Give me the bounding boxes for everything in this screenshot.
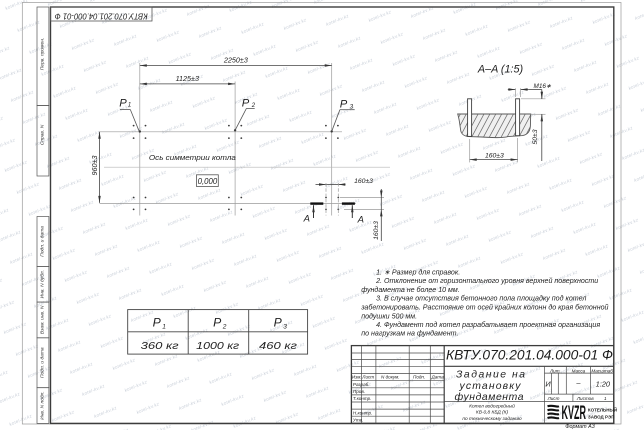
svg-text:Разраб.: Разраб. [353, 382, 370, 387]
svg-text:P: P [340, 99, 348, 111]
svg-text:Подп. и дата: Подп. и дата [40, 226, 46, 257]
svg-text:Подп. и дата: Подп. и дата [40, 347, 46, 378]
svg-text:Утв.: Утв. [353, 418, 363, 423]
svg-text:Лит.: Лит. [549, 368, 561, 373]
svg-text:A: A [303, 214, 310, 225]
svg-text:160±3: 160±3 [354, 178, 373, 185]
svg-text:Изм.: Изм. [352, 375, 362, 380]
svg-text:N докум.: N докум. [381, 375, 400, 380]
svg-text:960±3: 960±3 [90, 156, 99, 176]
svg-text:1125±3: 1125±3 [176, 74, 199, 83]
svg-text:–: – [575, 379, 581, 388]
svg-text:P: P [213, 316, 222, 330]
svg-text:по техническому заданию: по техническому заданию [462, 416, 522, 422]
svg-text:Инв. N подл.: Инв. N подл. [40, 391, 46, 420]
svg-text:360 кг: 360 кг [141, 341, 179, 352]
svg-text:Т.контр.: Т.контр. [353, 396, 372, 401]
svg-text:1: 1 [128, 103, 131, 109]
svg-text:Подп.: Подп. [413, 375, 425, 380]
svg-text:КВТУ.070.201.04.000-01 Ф: КВТУ.070.201.04.000-01 Ф [54, 12, 147, 21]
svg-text:Лист: Лист [547, 396, 560, 401]
svg-text:установку: установку [459, 381, 522, 392]
svg-text:Пров.: Пров. [353, 389, 365, 394]
svg-text:1: 1 [604, 396, 607, 401]
svg-text:Формат А3: Формат А3 [565, 424, 595, 430]
svg-text:3: 3 [283, 323, 287, 330]
svg-text:1:20: 1:20 [596, 380, 611, 389]
svg-text:Перв. примен.: Перв. примен. [40, 38, 46, 71]
svg-text:P: P [153, 316, 162, 330]
svg-text:A: A [357, 215, 364, 226]
svg-text:Справ. N: Справ. N [40, 124, 46, 145]
svg-text:Лист: Лист [361, 375, 374, 380]
svg-text:подушки 500 мм.: подушки 500 мм. [361, 312, 417, 320]
svg-text:460 кг: 460 кг [259, 341, 297, 352]
svg-text:1000 кг: 1000 кг [196, 341, 239, 352]
svg-text:М16∗: М16∗ [534, 83, 552, 90]
svg-text:1. ∗ Размер для справок.: 1. ∗ Размер для справок. [376, 268, 460, 276]
svg-text:Ось симметрии котла: Ось симметрии котла [149, 153, 236, 162]
svg-text:Масштаб: Масштаб [591, 368, 613, 373]
svg-text:КВ-0,8 КБД (К): КВ-0,8 КБД (К) [476, 409, 509, 415]
svg-text:Инв. N дубл.: Инв. N дубл. [40, 270, 46, 298]
svg-text:50±3: 50±3 [532, 129, 539, 144]
svg-text:1: 1 [162, 323, 166, 330]
svg-text:забетонировать. Расстояние от: забетонировать. Расстояние от осей крайн… [360, 303, 608, 311]
svg-text:фундамента не более 10 мм.: фундамента не более 10 мм. [361, 286, 460, 294]
svg-text:по нагрузкам на фундамент.: по нагрузкам на фундамент. [361, 330, 458, 338]
svg-text:ЗАВОД РЭП: ЗАВОД РЭП [588, 415, 615, 420]
svg-text:2250±3: 2250±3 [223, 56, 248, 65]
svg-text:Масса: Масса [572, 368, 586, 373]
svg-text:3. В случае отсутствия бетонно: 3. В случае отсутствия бетонного пола пл… [376, 295, 586, 303]
svg-text:2. Отклонение от горизонтально: 2. Отклонение от горизонтального уровня … [375, 277, 598, 285]
svg-text:И: И [545, 380, 551, 389]
svg-text:160±3: 160±3 [373, 221, 380, 240]
svg-text:Н.контр.: Н.контр. [353, 410, 372, 415]
svg-text:Взам. инв. N: Взам. инв. N [40, 305, 46, 334]
svg-text:2: 2 [222, 323, 227, 330]
svg-text:Дата: Дата [431, 375, 445, 380]
svg-text:4. Фундамент под котел разраба: 4. Фундамент под котел разрабатывает про… [376, 321, 600, 329]
svg-text:Задание на: Задание на [456, 369, 525, 380]
svg-text:A–A (1:5): A–A (1:5) [477, 64, 523, 76]
svg-text:0,000: 0,000 [198, 177, 218, 186]
svg-text:160±3: 160±3 [485, 152, 504, 159]
svg-text:P: P [119, 97, 127, 109]
svg-text:P: P [274, 316, 283, 330]
svg-text:P: P [242, 97, 250, 109]
svg-text:КВТУ.070.201.04.000-01 Ф: КВТУ.070.201.04.000-01 Ф [446, 348, 613, 363]
svg-text:КОТЕЛЬНЫЙ: КОТЕЛЬНЫЙ [588, 405, 617, 412]
svg-text:Котел водогрейный: Котел водогрейный [469, 403, 515, 410]
svg-text:KVZR: KVZR [562, 403, 587, 424]
svg-text:Листов: Листов [576, 396, 594, 401]
